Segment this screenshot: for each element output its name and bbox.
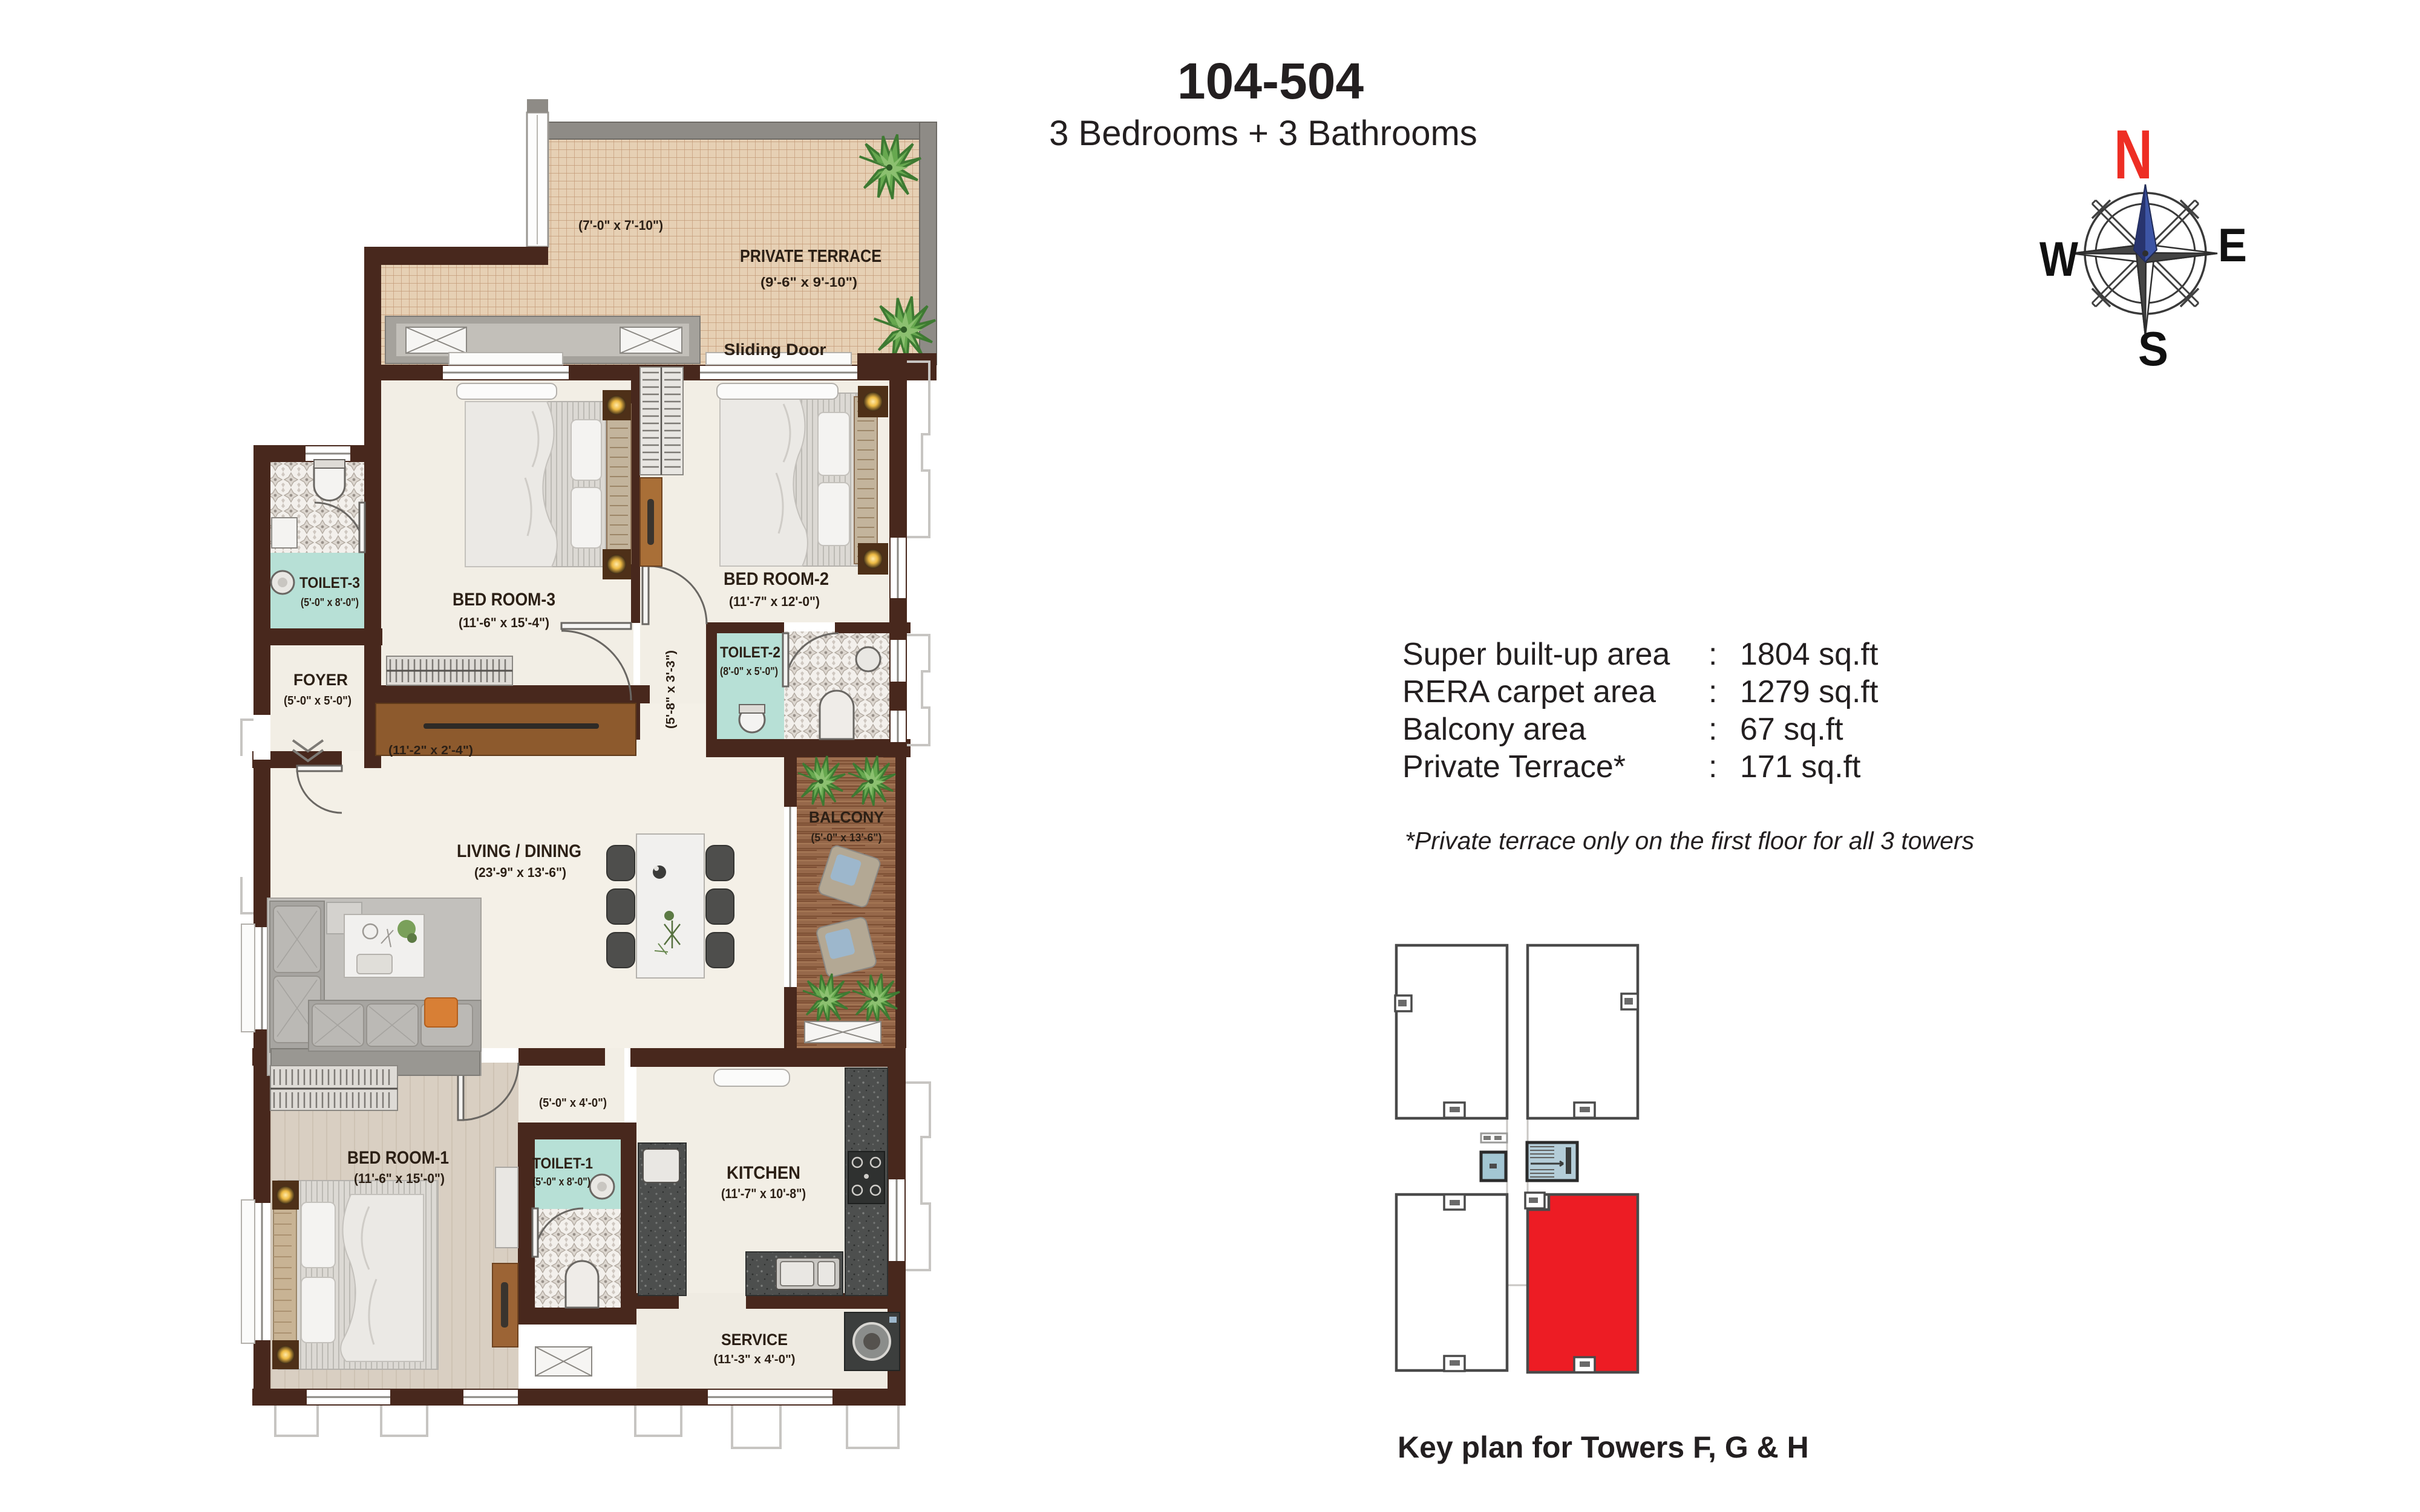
svg-text::: :: [1709, 749, 1717, 784]
svg-text:(11'-7" x 12'-0"): (11'-7" x 12'-0"): [729, 594, 820, 609]
svg-text:1279 sq.ft: 1279 sq.ft: [1740, 674, 1879, 709]
svg-text:S: S: [2138, 322, 2168, 376]
svg-text:67 sq.ft: 67 sq.ft: [1740, 712, 1843, 747]
svg-text:TOILET-3: TOILET-3: [299, 575, 360, 591]
svg-text:SERVICE: SERVICE: [721, 1331, 788, 1349]
svg-text::: :: [1709, 712, 1717, 747]
svg-text:(11'-3" x 4'-0"): (11'-3" x 4'-0"): [714, 1353, 796, 1366]
svg-text:BED ROOM-2: BED ROOM-2: [724, 569, 829, 589]
svg-text:(23'-9" x 13'-6"): (23'-9" x 13'-6"): [474, 865, 566, 880]
svg-text:3 Bedrooms + 3 Bathrooms: 3 Bedrooms + 3 Bathrooms: [1049, 114, 1477, 153]
svg-text:BED ROOM-1: BED ROOM-1: [347, 1148, 449, 1168]
svg-text:(5'-0" x 5'-0"): (5'-0" x 5'-0"): [284, 694, 352, 708]
svg-text:(5'-0" x 13'-6"): (5'-0" x 13'-6"): [811, 832, 882, 844]
svg-text:FOYER: FOYER: [293, 671, 348, 689]
svg-text:171 sq.ft: 171 sq.ft: [1740, 749, 1861, 784]
svg-text:1804 sq.ft: 1804 sq.ft: [1740, 637, 1879, 672]
svg-text:104-504: 104-504: [1177, 53, 1364, 109]
svg-text:(9'-6" x 9'-10"): (9'-6" x 9'-10"): [760, 275, 857, 290]
svg-text:(5'-0" x 8'-0"): (5'-0" x 8'-0"): [301, 596, 359, 608]
svg-text:(11'-7" x 10'-8"): (11'-7" x 10'-8"): [721, 1186, 806, 1201]
svg-text:Super built-up area: Super built-up area: [1402, 637, 1670, 672]
svg-text:KITCHEN: KITCHEN: [727, 1163, 800, 1183]
svg-text:(11'-2" x 2'-4"): (11'-2" x 2'-4"): [388, 744, 473, 757]
svg-text:(5'-8" x 3'-3"): (5'-8" x 3'-3"): [664, 650, 678, 729]
svg-text:RERA carpet area: RERA carpet area: [1402, 674, 1656, 709]
svg-text:W: W: [2039, 232, 2078, 287]
svg-text:(11'-6" x 15'-4"): (11'-6" x 15'-4"): [459, 615, 549, 630]
svg-text:TOILET-2: TOILET-2: [720, 644, 780, 661]
svg-text:PRIVATE TERRACE: PRIVATE TERRACE: [740, 247, 881, 266]
svg-text::: :: [1709, 674, 1717, 709]
svg-text:E: E: [2218, 218, 2247, 272]
svg-text::: :: [1709, 637, 1717, 672]
svg-text:N: N: [2114, 116, 2153, 194]
svg-text:LIVING / DINING: LIVING / DINING: [457, 841, 581, 861]
svg-text:*Private terrace only on the f: *Private terrace only on the first floor…: [1405, 827, 1974, 855]
svg-text:(11'-6" x 15'-0"): (11'-6" x 15'-0"): [354, 1171, 445, 1186]
svg-text:BALCONY: BALCONY: [809, 808, 884, 826]
svg-text:Balcony area: Balcony area: [1402, 712, 1586, 747]
svg-text:TOILET-1: TOILET-1: [532, 1155, 593, 1172]
svg-text:(5'-0" x 8'-0"): (5'-0" x 8'-0"): [532, 1176, 590, 1188]
svg-text:(5'-0" x 4'-0"): (5'-0" x 4'-0"): [539, 1097, 607, 1110]
svg-text:(8'-0" x 5'-0"): (8'-0" x 5'-0"): [720, 665, 778, 677]
svg-text:Key plan for Towers F, G & H: Key plan for Towers F, G & H: [1398, 1430, 1809, 1464]
svg-text:Sliding Door: Sliding Door: [724, 341, 827, 359]
svg-text:(7'-0" x 7'-10"): (7'-0" x 7'-10"): [578, 218, 663, 233]
svg-text:Private Terrace*: Private Terrace*: [1402, 749, 1626, 784]
svg-text:BED ROOM-3: BED ROOM-3: [453, 590, 555, 610]
